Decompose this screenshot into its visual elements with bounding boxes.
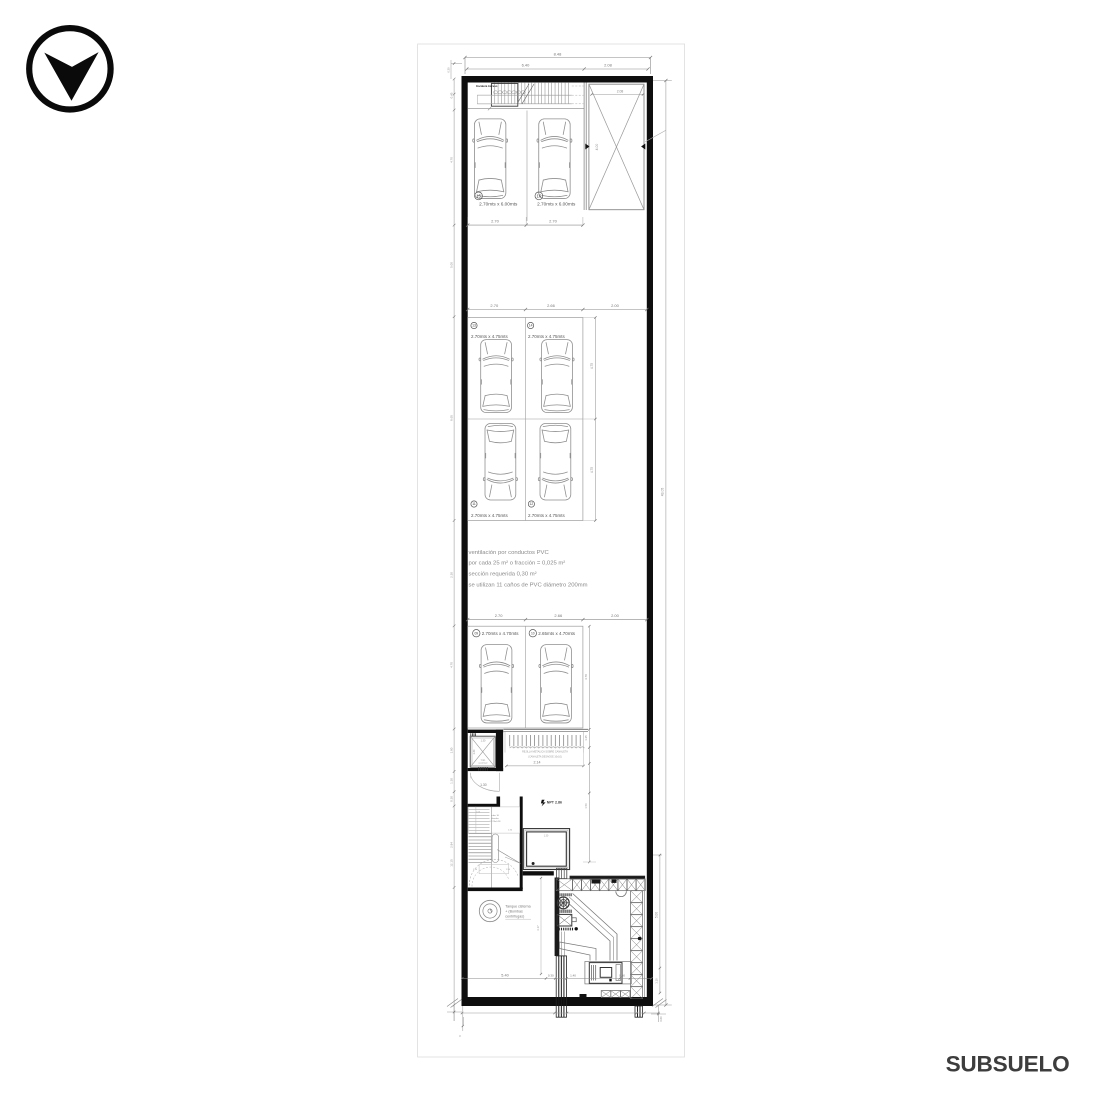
svg-text:NPT 2.86: NPT 2.86 (547, 800, 562, 804)
svg-text:12: 12 (530, 502, 534, 506)
svg-text:14: 14 (529, 324, 533, 328)
svg-text:4.00: 4.00 (595, 144, 599, 151)
svg-text:2.66: 2.66 (554, 613, 563, 618)
svg-text:Tanque cisterna: Tanque cisterna (505, 905, 530, 909)
svg-text:2.70: 2.70 (490, 303, 499, 308)
svg-text:2.70: 2.70 (491, 219, 500, 224)
svg-text:(CANALETA DESAGÜE 10x10): (CANALETA DESAGÜE 10x10) (528, 755, 562, 758)
svg-text:15: 15 (476, 193, 481, 198)
svg-text:2.70: 2.70 (549, 219, 558, 224)
svg-text:4.75: 4.75 (590, 467, 594, 473)
svg-text:8.65: 8.65 (449, 415, 453, 421)
svg-text:2.70mts x 4.70mts: 2.70mts x 4.70mts (482, 631, 520, 636)
svg-text:2.70mts x 4.75mts: 2.70mts x 4.75mts (528, 334, 566, 339)
svg-text:2.30: 2.30 (449, 572, 453, 578)
svg-text:2.70mts x 4.75mts: 2.70mts x 4.75mts (528, 513, 566, 518)
svg-text:0.90: 0.90 (619, 973, 625, 977)
svg-text:2.66: 2.66 (547, 303, 556, 308)
svg-text:ventilación por conductos PVC: ventilación por conductos PVC (469, 550, 550, 556)
svg-text:1.10: 1.10 (655, 978, 659, 984)
svg-text:4.75: 4.75 (590, 363, 594, 369)
svg-text:2.00: 2.00 (611, 303, 620, 308)
svg-text:43.05: 43.05 (661, 488, 665, 497)
svg-text:2.70mts x 4.75mts: 2.70mts x 4.75mts (471, 513, 509, 518)
svg-text:por cada 25 m² o fracción = 0,: por cada 25 m² o fracción = 0,025 m² (469, 561, 566, 567)
svg-text:6.40: 6.40 (522, 63, 531, 68)
svg-text:1.30: 1.30 (481, 740, 486, 743)
svg-text:2.70mts x 6.00mts: 2.70mts x 6.00mts (537, 201, 576, 206)
svg-text:11: 11 (472, 502, 476, 506)
svg-text:ascensor: ascensor (479, 761, 488, 764)
svg-text:0.30: 0.30 (447, 67, 451, 73)
svg-text:10: 10 (531, 631, 535, 635)
svg-text:Caja: Caja (481, 760, 486, 762)
svg-text:alzadas: alzadas (491, 818, 499, 820)
svg-text:2.84: 2.84 (449, 842, 453, 848)
svg-text:sube 16: sube 16 (491, 815, 500, 817)
svg-text:1.35: 1.35 (584, 735, 588, 741)
svg-text:5.00: 5.00 (449, 262, 453, 268)
svg-text:0.30: 0.30 (548, 973, 554, 977)
svg-text:16: 16 (537, 193, 542, 198)
svg-text:1.30: 1.30 (544, 836, 549, 838)
svg-text:2.70: 2.70 (495, 613, 504, 618)
svg-text:1.30: 1.30 (449, 778, 453, 784)
svg-text:13: 13 (472, 324, 476, 328)
svg-text:REJILLA METALICA SOBRE CANALET: REJILLA METALICA SOBRE CANALETA (522, 751, 568, 754)
svg-text:4.70: 4.70 (449, 662, 453, 668)
svg-text:1.30: 1.30 (480, 783, 487, 787)
svg-text:0.45: 0.45 (449, 92, 453, 98)
svg-text:+ (Bombas: + (Bombas (505, 910, 523, 914)
svg-text:1.50: 1.50 (584, 803, 588, 809)
svg-text:4.70: 4.70 (584, 674, 588, 680)
svg-text:SUBSUELO: SUBSUELO (946, 1052, 1070, 1077)
svg-text:1.30: 1.30 (473, 749, 476, 754)
svg-text:5.00: 5.00 (655, 912, 659, 918)
svg-text:3.17: 3.17 (536, 925, 540, 931)
svg-text:2.08: 2.08 (617, 89, 624, 93)
svg-text:09: 09 (474, 631, 478, 635)
svg-text:2.70mts x 4.75mts: 2.70mts x 4.75mts (471, 334, 509, 339)
svg-text:5.40: 5.40 (501, 973, 508, 977)
svg-text:se utilizan 11 caños de PVC di: se utilizan 11 caños de PVC diámetro 200… (469, 583, 588, 589)
svg-text:1.40: 1.40 (570, 973, 576, 977)
svg-text:2.08: 2.08 (604, 63, 613, 68)
svg-text:4.70: 4.70 (449, 157, 453, 163)
svg-text:0.30: 0.30 (449, 796, 453, 802)
svg-text:0.60: 0.60 (659, 1016, 663, 1022)
svg-text:2.70mts x 6.00mts: 2.70mts x 6.00mts (479, 201, 518, 206)
svg-text:Escalera Acceso: Escalera Acceso (476, 84, 498, 88)
svg-text:1.80: 1.80 (449, 747, 453, 753)
svg-text:sección requerida 0,30 m²: sección requerida 0,30 m² (469, 572, 537, 578)
svg-text:12.15: 12.15 (449, 859, 453, 867)
svg-text:2.00: 2.00 (611, 613, 620, 618)
svg-text:centrífugas): centrífugas) (505, 915, 524, 919)
svg-text:2.14: 2.14 (534, 760, 541, 764)
svg-text:8.48: 8.48 (554, 51, 563, 56)
svg-text:2.65mts x 4.70mts: 2.65mts x 4.70mts (538, 631, 576, 636)
